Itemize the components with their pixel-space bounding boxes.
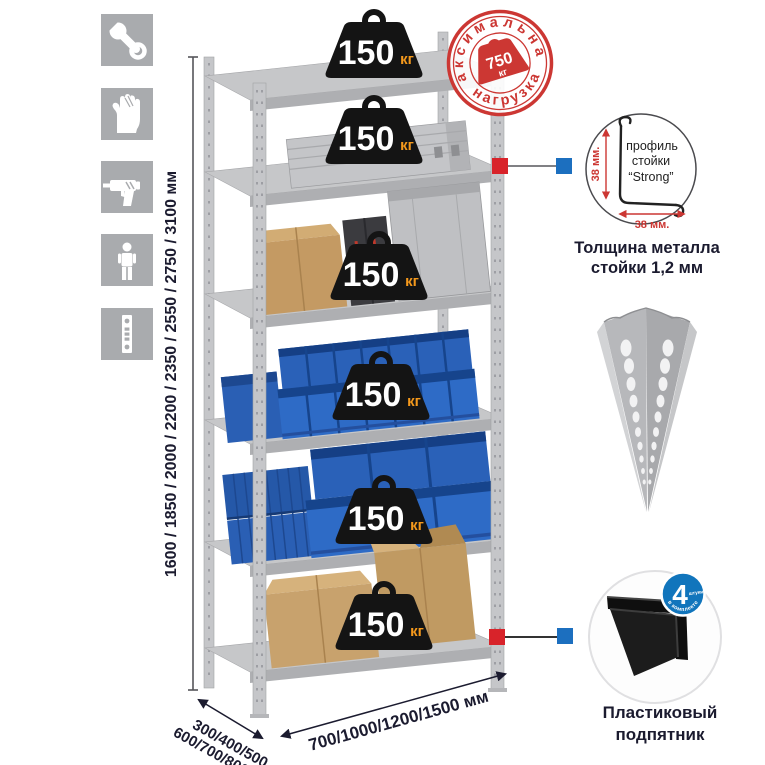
profile-horizontal-dim: 38 мм.	[635, 219, 670, 231]
foot-connector	[489, 628, 573, 645]
foot-detail: 4 штуки в комплекте Пластиковый подпятни…	[589, 571, 721, 744]
profile-label-line3: “Strong”	[628, 170, 673, 184]
shelf-weight-1	[326, 12, 423, 78]
drill-icon	[101, 161, 153, 213]
sidebar-icons	[101, 14, 153, 360]
shelf-weight-2	[326, 98, 423, 164]
foot-connector-blue-square	[557, 628, 573, 644]
height-dimension: 1600 / 1850 / 2000 / 2200 / 2350 / 2550 …	[163, 57, 198, 690]
shelving-rack-infographic: 150 кг	[0, 0, 765, 765]
gloves-icon	[101, 88, 153, 140]
profile-label-line2: стойки	[632, 154, 670, 168]
max-load-stamp: максимальная нагрузка 750 кг	[436, 0, 565, 127]
height-dimension-label: 1600 / 1850 / 2000 / 2200 / 2350 / 2550 …	[163, 171, 180, 577]
person-icon	[101, 234, 153, 286]
profile-caption-line1: Толщина металла	[574, 239, 720, 257]
perforated-upright-icon	[101, 308, 153, 360]
profile-connector	[492, 158, 572, 174]
count-badge: 4 штуки в комплекте	[662, 573, 705, 616]
wrench-icon	[101, 14, 153, 66]
profile-caption-line2: стойки 1,2 мм	[591, 259, 703, 277]
foot-caption-line1: Пластиковый	[603, 703, 718, 722]
corner-post-image	[597, 308, 697, 512]
shelving-rack	[204, 12, 507, 718]
profile-connector-red-square	[492, 158, 508, 174]
infographic-svg: 150 кг	[0, 0, 765, 765]
foot-connector-red-square	[489, 629, 505, 645]
profile-vertical-dim: 38 мм.	[590, 147, 602, 182]
foot-caption-line2: подпятник	[616, 725, 705, 744]
width-dimension: 700/1000/1200/1500 мм	[282, 674, 505, 755]
profile-connector-blue-square	[556, 158, 572, 174]
profile-detail: 38 мм. 38 мм. профиль стойки “Strong” То…	[574, 114, 720, 277]
width-label: 700/1000/1200/1500 мм	[306, 687, 490, 755]
profile-label-line1: профиль	[626, 139, 678, 153]
